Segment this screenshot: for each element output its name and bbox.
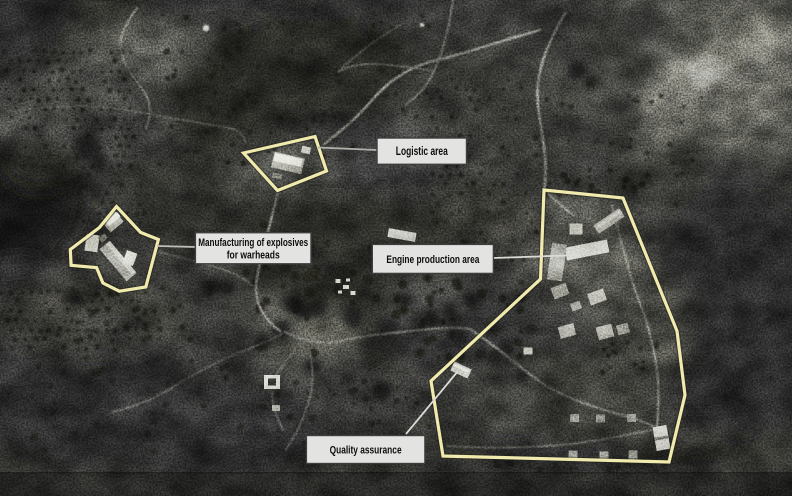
svg-text:Logistic area: Logistic area <box>396 146 448 158</box>
svg-text:Engine production area: Engine production area <box>386 254 480 266</box>
svg-text:Manufacturing of explosives: Manufacturing of explosives <box>198 237 308 249</box>
svg-text:for warheads: for warheads <box>227 249 280 261</box>
svg-text:Quality assurance: Quality assurance <box>330 444 402 456</box>
